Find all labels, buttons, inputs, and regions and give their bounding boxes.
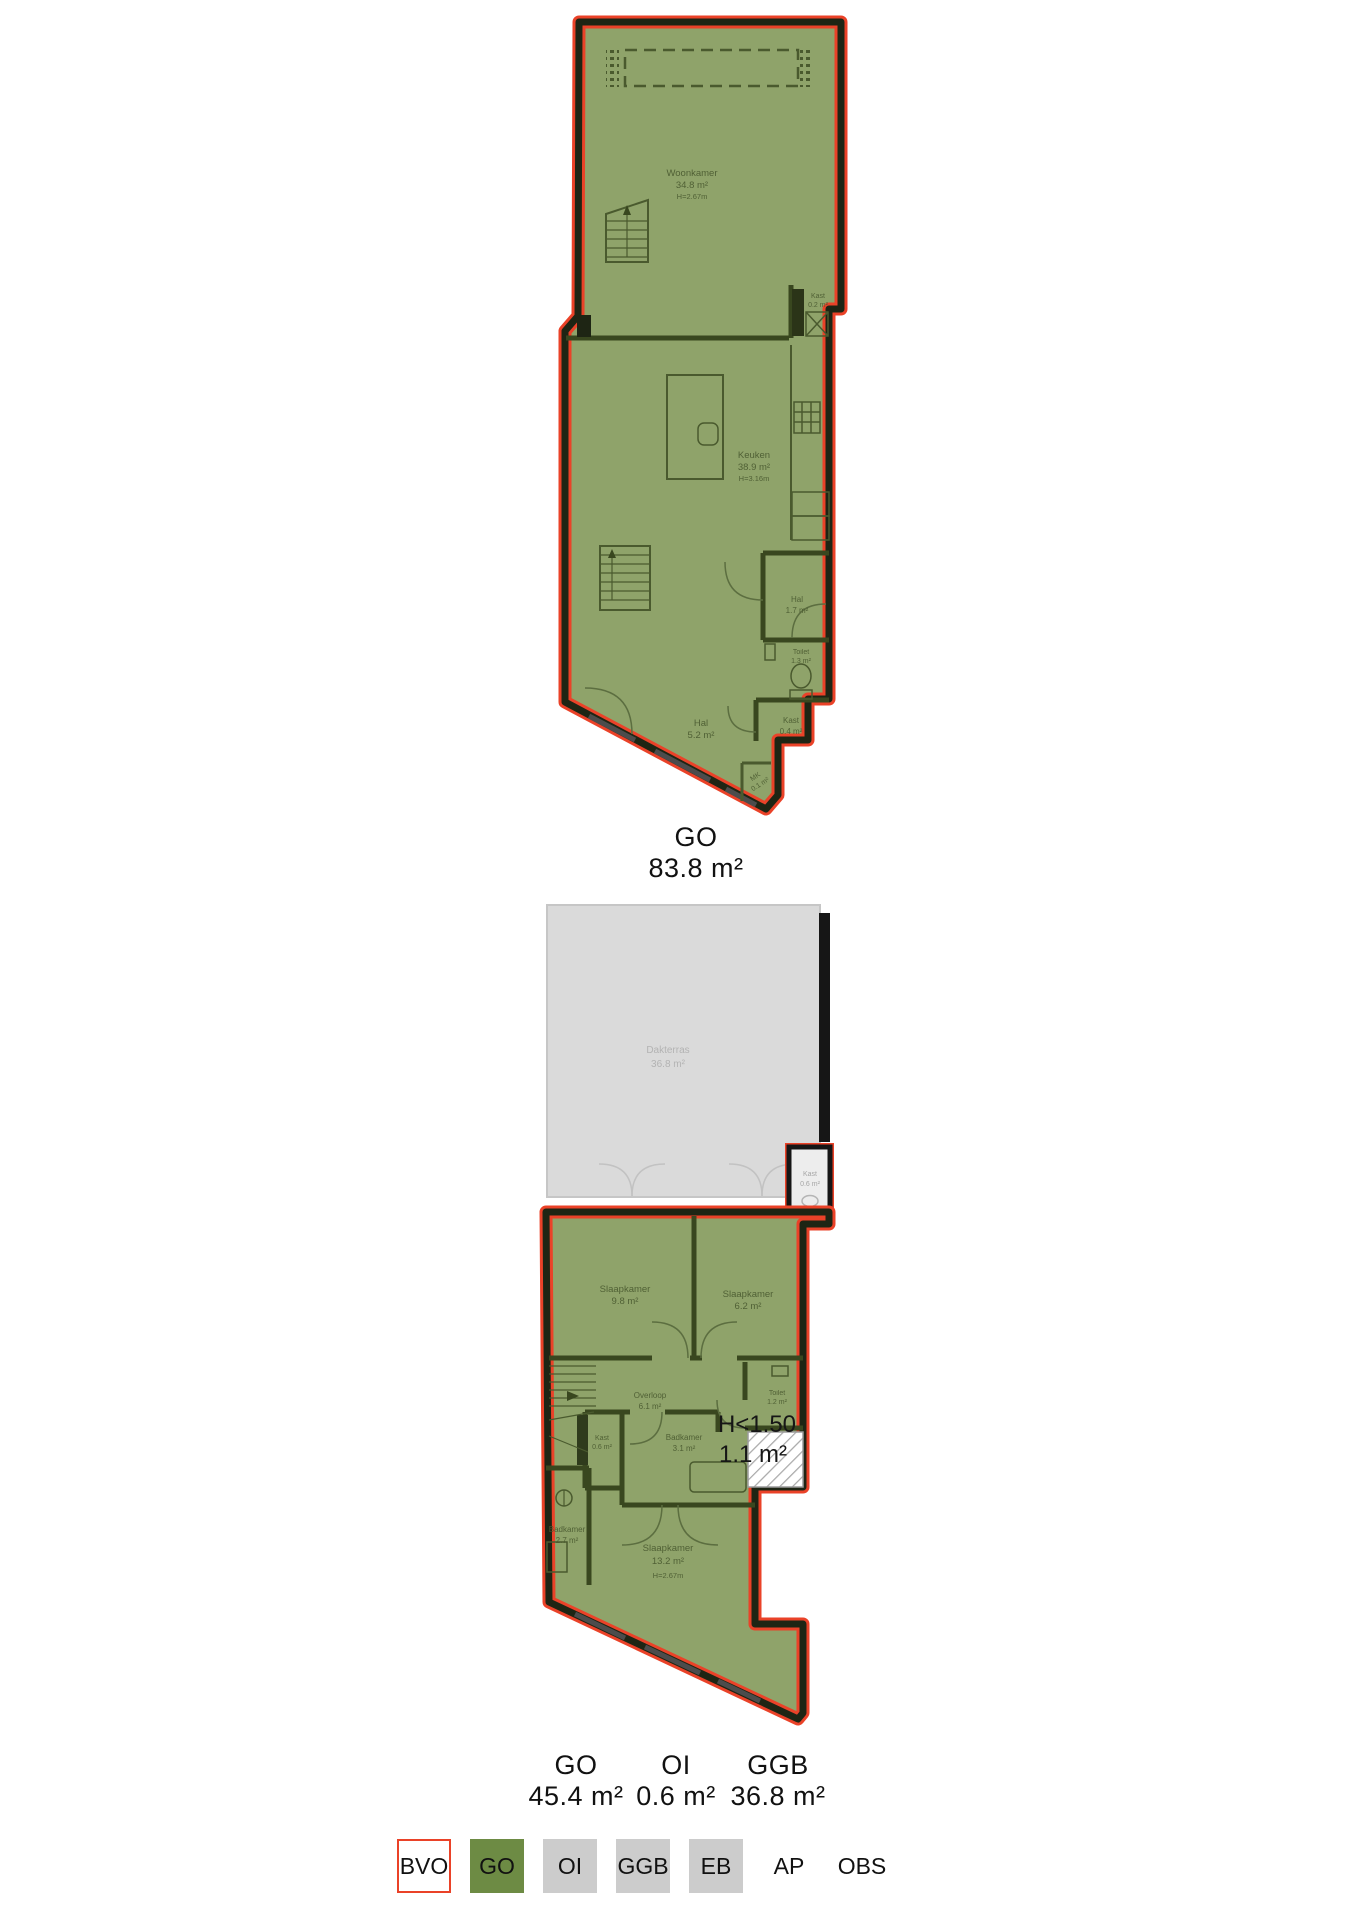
legend-label-ggb: GGB [617, 1853, 668, 1880]
caption-label: GGB [713, 1750, 843, 1781]
room-name: Hal [694, 718, 708, 729]
legend-swatch-ap: AP [762, 1839, 816, 1893]
room-height: H=3.16m [739, 474, 770, 483]
floor1-caption-value: 83.8 m² [571, 853, 821, 884]
room-area: 5.2 m² [688, 730, 715, 741]
room-name: Slaapkamer [723, 1289, 774, 1300]
legend: BVO GO OI GGB EB AP OBS [397, 1839, 889, 1893]
low-height-area: 1.1 m² [719, 1441, 787, 1468]
room-area: 1.3 m² [791, 658, 812, 665]
wall-block [792, 289, 804, 336]
room-name: Overloop [634, 1391, 667, 1400]
room-name: Woonkamer [666, 168, 717, 179]
room-area: 6.2 m² [735, 1301, 762, 1312]
wall-block [577, 1415, 588, 1465]
room-name: Dakterras [646, 1045, 689, 1056]
legend-label-go: GO [479, 1853, 515, 1880]
room-area: 0.6 m² [800, 1181, 821, 1188]
legend-swatch-bvo: BVO [397, 1839, 451, 1893]
room-name: Keuken [738, 450, 770, 461]
skylight-dots-right [800, 49, 813, 87]
room-name: Kast [811, 293, 825, 300]
legend-swatch-obs: OBS [835, 1839, 889, 1893]
flue-block [577, 315, 591, 337]
legend-label-oi: OI [558, 1853, 582, 1880]
skylight-dots-left [606, 49, 619, 87]
legend-label-ap: AP [774, 1853, 805, 1880]
floorplan-second-floor: Dakterras 36.8 m² Kast 0.6 m² [525, 895, 855, 1730]
room-area: 2.7 m² [556, 1536, 579, 1545]
low-height-label: H<1.50 [718, 1411, 796, 1438]
legend-swatch-ggb: GGB [616, 1839, 670, 1893]
room-name: Hal [791, 595, 803, 604]
room-name: Kast [595, 1435, 609, 1442]
room-name: Toilet [769, 1390, 785, 1397]
room-name: Slaapkamer [643, 1543, 694, 1554]
legend-label-eb: EB [701, 1853, 732, 1880]
legend-swatch-eb: EB [689, 1839, 743, 1893]
room-area: 0.6 m² [592, 1444, 613, 1451]
caption-value: 36.8 m² [713, 1781, 843, 1812]
floor1-caption-label: GO [571, 822, 821, 853]
room-area: 13.2 m² [652, 1556, 684, 1567]
room-area: 6.1 m² [639, 1402, 662, 1411]
legend-label-obs: OBS [838, 1853, 887, 1880]
terrace-closet-oi: Kast 0.6 m² [789, 1147, 830, 1215]
floorplan-first-floor: Woonkamer 34.8 m² H=2.67m Keuken 38.9 m²… [540, 10, 870, 820]
room-area: 1.7 m² [786, 606, 809, 615]
room-height: H=2.67m [653, 1571, 684, 1580]
room-name: Kast [803, 1171, 817, 1178]
room-name: Kast [783, 716, 800, 725]
legend-label-bvo: BVO [400, 1853, 449, 1880]
terrace-wall [819, 913, 830, 1142]
room-height: H=2.67m [677, 192, 708, 201]
room-name: Slaapkamer [600, 1284, 651, 1295]
room-name: Toilet [793, 649, 809, 656]
room-area: 34.8 m² [676, 180, 708, 191]
room-area: 36.8 m² [651, 1059, 686, 1070]
floor1-caption: GO 83.8 m² [571, 822, 821, 884]
room-area: 3.1 m² [673, 1444, 696, 1453]
room-area: 38.9 m² [738, 462, 770, 473]
legend-swatch-go: GO [470, 1839, 524, 1893]
room-area: 9.8 m² [612, 1296, 639, 1307]
room-name: Badkamer [549, 1525, 586, 1534]
floor2-caption-ggb: GGB 36.8 m² [713, 1750, 843, 1812]
room-area: 1.2 m² [767, 1399, 788, 1406]
room-name: Badkamer [666, 1433, 703, 1442]
room-area: 0.4 m² [780, 727, 803, 736]
room-area: 0.2 m² [808, 302, 829, 309]
legend-swatch-oi: OI [543, 1839, 597, 1893]
floorplan-page: Woonkamer 34.8 m² H=2.67m Keuken 38.9 m²… [0, 0, 1358, 1920]
